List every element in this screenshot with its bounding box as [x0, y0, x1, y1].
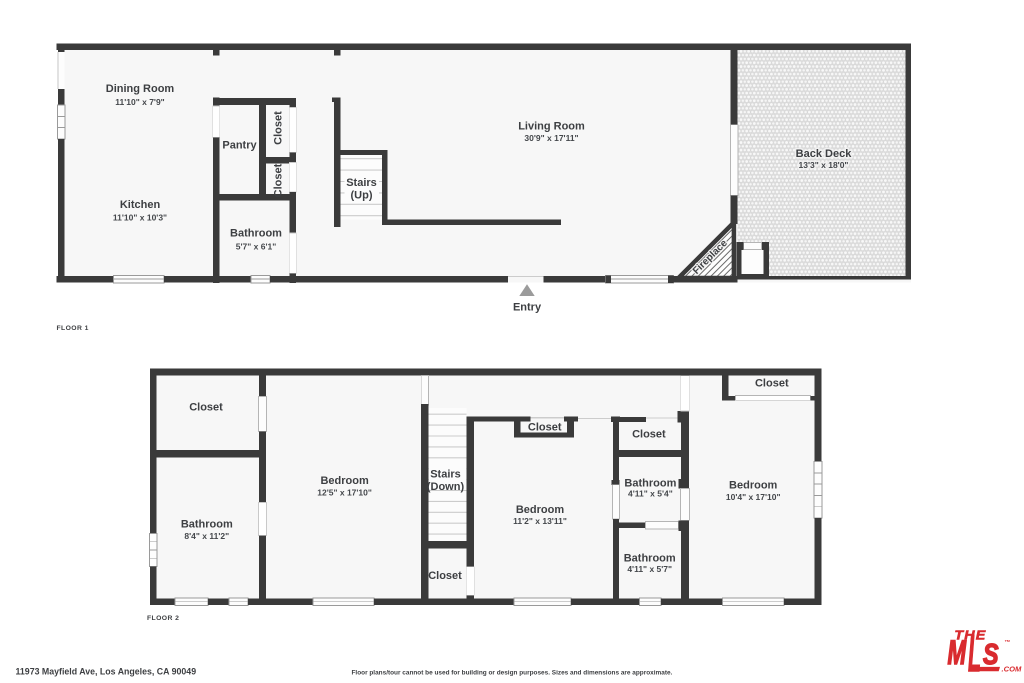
- svg-text:Closet: Closet: [528, 422, 562, 434]
- svg-text:10'4" x 17'10": 10'4" x 17'10": [726, 492, 781, 502]
- svg-text:11'10" x 7'9": 11'10" x 7'9": [115, 97, 164, 107]
- svg-text:(Down): (Down): [427, 481, 465, 493]
- svg-text:Bedroom: Bedroom: [320, 475, 369, 487]
- svg-text:13'3" x 18'0": 13'3" x 18'0": [799, 160, 849, 170]
- svg-text:Living Room: Living Room: [518, 121, 585, 133]
- svg-text:Back Deck: Back Deck: [796, 148, 853, 160]
- svg-text:Dining Room: Dining Room: [106, 83, 175, 95]
- svg-text:Bathroom: Bathroom: [624, 553, 676, 565]
- svg-text:8'4" x 11'2": 8'4" x 11'2": [184, 531, 229, 541]
- svg-text:Closet: Closet: [273, 163, 285, 197]
- svg-text:11973 Mayfield Ave, Los Angele: 11973 Mayfield Ave, Los Angeles, CA 9004…: [16, 667, 197, 677]
- svg-text:Closet: Closet: [189, 402, 223, 414]
- svg-text:12'5" x 17'10": 12'5" x 17'10": [317, 488, 372, 498]
- svg-text:Bedroom: Bedroom: [516, 504, 565, 516]
- svg-text:FLOOR 2: FLOOR 2: [147, 615, 179, 622]
- svg-text:Closet: Closet: [632, 429, 666, 441]
- svg-text:Closet: Closet: [755, 378, 789, 390]
- svg-text:(Up): (Up): [351, 190, 373, 202]
- svg-text:Bathroom: Bathroom: [181, 519, 233, 531]
- svg-text:30'9" x 17'11": 30'9" x 17'11": [524, 133, 578, 143]
- svg-text:FLOOR 1: FLOOR 1: [57, 325, 89, 332]
- svg-text:S: S: [983, 639, 999, 671]
- svg-text:Kitchen: Kitchen: [120, 199, 161, 211]
- svg-text:Pantry: Pantry: [222, 140, 257, 152]
- svg-text:4'11" x 5'4": 4'11" x 5'4": [628, 489, 673, 499]
- svg-text:Stairs: Stairs: [346, 177, 377, 189]
- svg-text:™: ™: [1005, 639, 1011, 646]
- svg-text:Floor plans/tour cannot be use: Floor plans/tour cannot be used for buil…: [352, 670, 673, 677]
- svg-text:11'10" x 10'3": 11'10" x 10'3": [113, 213, 167, 223]
- svg-text:Closet: Closet: [428, 570, 462, 582]
- svg-text:L: L: [968, 625, 981, 683]
- svg-text:11'2" x 13'11": 11'2" x 13'11": [513, 516, 567, 526]
- svg-text:Entry: Entry: [513, 302, 542, 314]
- svg-text:Bedroom: Bedroom: [729, 480, 778, 492]
- svg-text:Closet: Closet: [273, 111, 285, 145]
- svg-text:4'11" x 5'7": 4'11" x 5'7": [627, 564, 672, 574]
- svg-text:5'7" x 6'1": 5'7" x 6'1": [236, 242, 276, 252]
- svg-text:.COM: .COM: [1002, 664, 1023, 673]
- svg-text:Bathroom: Bathroom: [230, 228, 282, 240]
- svg-text:M: M: [948, 634, 967, 672]
- svg-text:Stairs: Stairs: [430, 469, 461, 481]
